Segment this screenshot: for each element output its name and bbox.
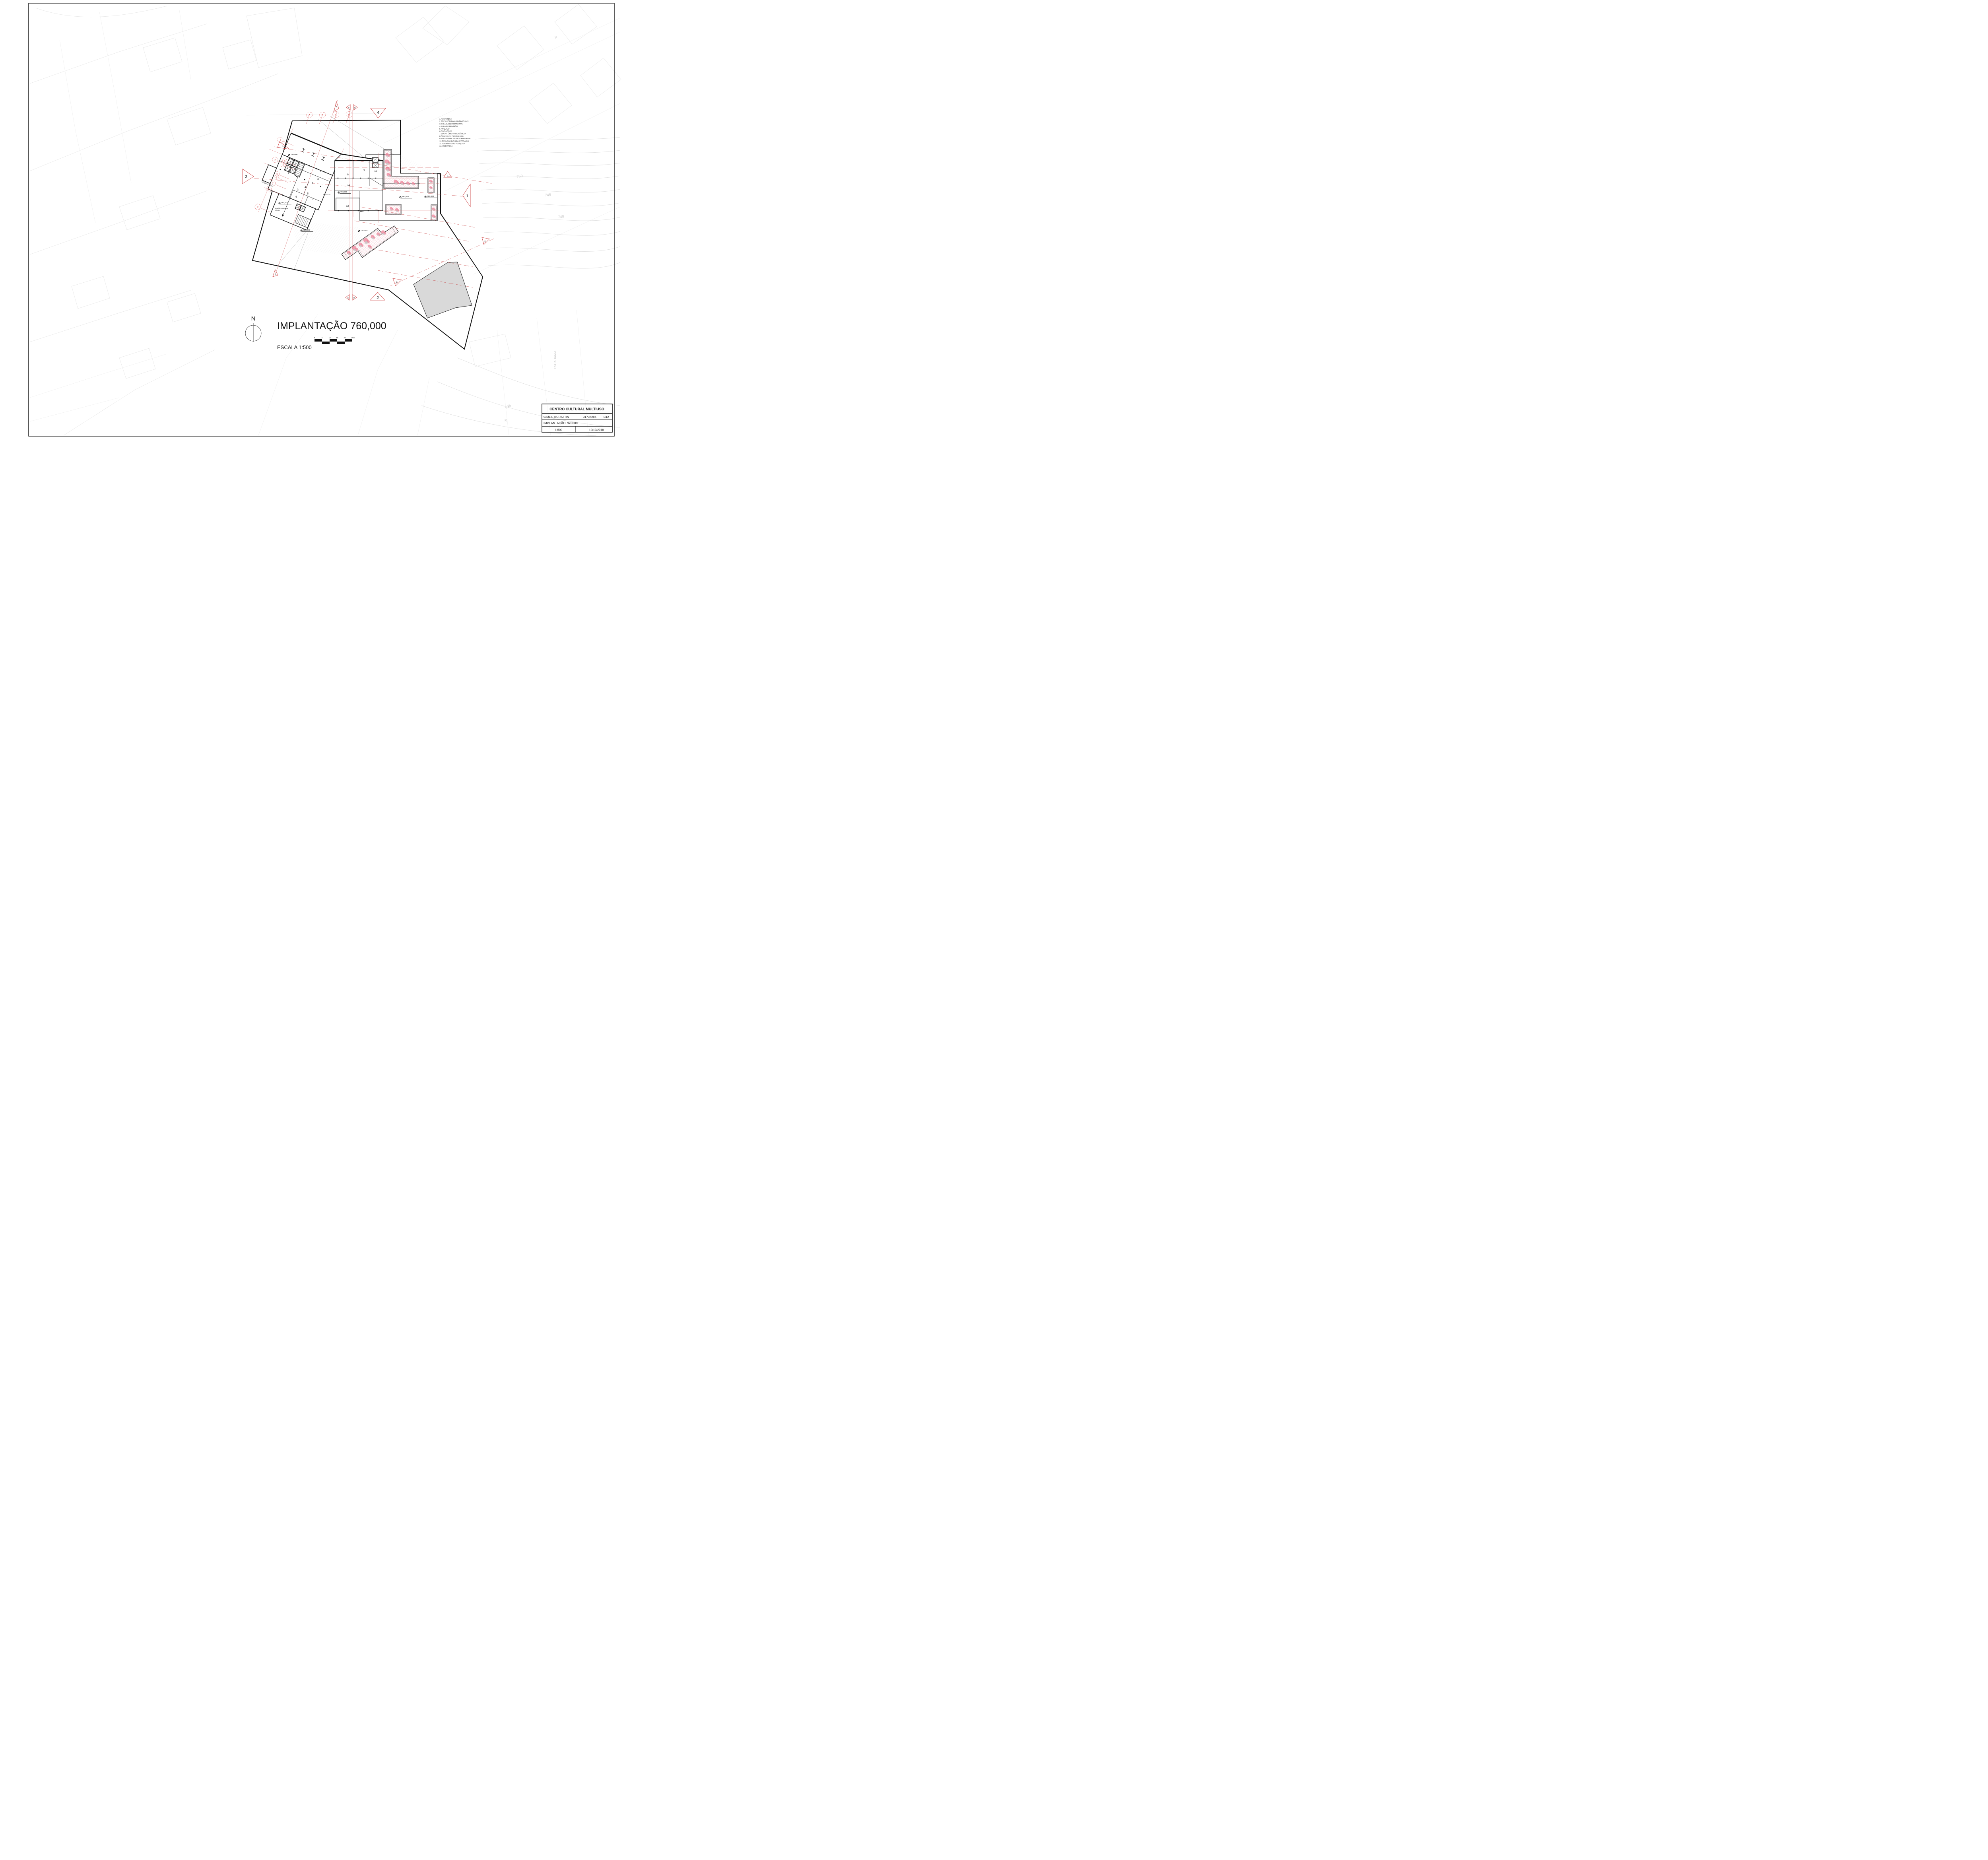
section-marker-D-top: D [353,105,357,110]
drawing-scale: 1:500 [555,428,563,432]
drawing-date: 10/12/2018 [589,428,604,432]
svg-text:1: 1 [466,194,468,198]
planter-right-lower [431,205,437,221]
legend-item: 8.ÁREA PARA PERIÓDICOS [439,135,464,137]
author-name: GIULIE BURATTIN [544,415,569,419]
room-label-11: 11 [348,184,350,186]
street-label-v: V [555,35,557,39]
svg-text:0: 0 [314,337,315,339]
page-title: IMPLANTAÇÃO 760,000 [277,320,386,332]
room-label-6: 6 [295,196,297,198]
svg-text:B: B [336,106,337,108]
section-marker-1: 1 [463,184,470,207]
svg-text:E: E [396,281,397,283]
title-area: N IMPLANTAÇÃO 760,000 ESCALA 1:500 0 5 1… [245,315,386,350]
svg-text:3: 3 [245,175,247,179]
svg-text:10: 10 [328,337,331,339]
legend-item: 5.ARQUIVO [439,128,450,130]
room-label-5: 5 [307,192,309,195]
student-id: 31737285 [583,415,596,419]
sheet-border [29,3,614,436]
svg-text:760,000: 760,000 [291,153,298,156]
section-marker-E-upper: E [482,237,489,245]
legend-item: 6.COPIADORA [439,130,452,132]
svg-text:B: B [275,274,276,276]
legend-item: 12.VIDEOTECA [439,145,453,147]
contour-lines: 750 745 740 735 ESCADARIA V R [421,35,620,436]
contour-label-745: 745 [545,192,551,197]
scale-bar: 0 5 10 15 20 25m [314,337,355,344]
contour-label-735: 735 [505,403,512,410]
legend: 1.AUDIOTECA 2.ÁREA COM BAIAS INDIVIDUAIS… [439,118,471,147]
svg-text:2: 2 [274,159,276,162]
north-arrow: N [245,315,261,342]
legend-item: 3.SALAS ADMINISTRATIVA [439,123,463,125]
svg-text:5: 5 [322,337,323,339]
svg-text:760,000: 760,000 [402,196,409,198]
svg-text:B: B [322,115,323,117]
contour-label-750: 750 [516,174,523,179]
room-label-3: 3 [297,188,299,191]
svg-text:25m: 25m [351,337,355,339]
street-label-escadaria: ESCADARIA [553,350,557,369]
legend-item: 2.ÁREA COM BAIAS INDIVIDUAIS [439,120,468,122]
class-code: B12 [604,415,609,419]
svg-text:A: A [282,145,283,147]
svg-text:751,840: 751,840 [361,229,368,232]
site-plan-svg: 750 745 740 735 ESCADARIA V R [0,0,623,440]
contour-label-740: 740 [558,214,564,219]
section-marker-B-bottom: B [273,270,278,277]
bebedouro-note: Bebedouro [323,194,330,196]
svg-text:760,000: 760,000 [340,191,348,193]
svg-text:D: D [353,297,355,299]
svg-text:20: 20 [344,337,346,339]
room-label-2: 2 [317,178,319,181]
svg-text:C: C [348,297,349,299]
svg-text:760,000: 760,000 [303,229,310,231]
legend-item: 9.SALAS PARA ESTUDO EM GRUPO [439,138,471,140]
descida-note-line2: inferior [275,209,280,211]
svg-text:A: A [309,115,310,117]
svg-text:D: D [354,107,356,109]
section-marker-2: 2 [370,292,385,300]
section-marker-C-bottom: C [346,295,349,300]
svg-text:1: 1 [280,140,281,142]
drawing-title: IMPLANTAÇÃO 760,000 [544,421,578,425]
svg-text:760,000: 760,000 [281,202,288,204]
svg-text:15: 15 [336,337,338,339]
room-label-9: 9 [363,169,365,172]
svg-text:4: 4 [377,110,379,115]
section-marker-B-top: B [334,101,339,111]
paved-gray-area [414,262,472,318]
svg-text:755,920: 755,920 [427,195,434,198]
grid-bubble-A: A [306,112,313,124]
svg-text:D: D [348,114,350,116]
section-marker-E-lower: E [393,278,402,286]
street-label-r: R [505,419,507,422]
room-label-12: 12 [346,205,349,208]
room-label-10: 10 [374,170,377,173]
svg-text:2: 2 [377,295,379,300]
title-block: CENTRO CULTURAL MULTIUSO GIULIE BURATTIN… [542,404,612,432]
legend-item: 4.SALA DE REUNIÃO [439,125,458,127]
grid-bubble-B: B [319,112,326,124]
north-label: N [251,315,256,322]
legend-item: 1.AUDIOTECA [439,118,452,120]
section-marker-D-bottom: D [353,295,357,300]
grid-bubble-C: C [333,111,339,124]
legend-item: 7.ESCRITÓRIO PANORÂMICO [439,132,466,135]
section-marker-3: 3 [243,169,254,184]
svg-text:E: E [484,240,485,242]
legend-item: 10.ESTAÇÃO DO BIBLIOTECÁRIO [439,140,469,142]
svg-text:C: C [335,114,337,116]
scale-label: ESCALA 1:500 [277,344,312,350]
room-label-7: 7 [312,198,314,201]
legend-item: 11.TERMINAIS DE PESQUISA [439,143,466,145]
room-label-1: 1 [320,170,321,173]
svg-text:9: 9 [257,206,258,209]
building-main-block [245,122,348,235]
room-label-8: 8 [347,173,349,176]
drawing-sheet: 750 745 740 735 ESCADARIA V R [0,0,623,440]
project-title: CENTRO CULTURAL MULTIUSO [549,407,604,411]
svg-text:C: C [348,107,350,109]
section-marker-C-top: C [346,105,350,110]
background-fabric [30,4,621,435]
